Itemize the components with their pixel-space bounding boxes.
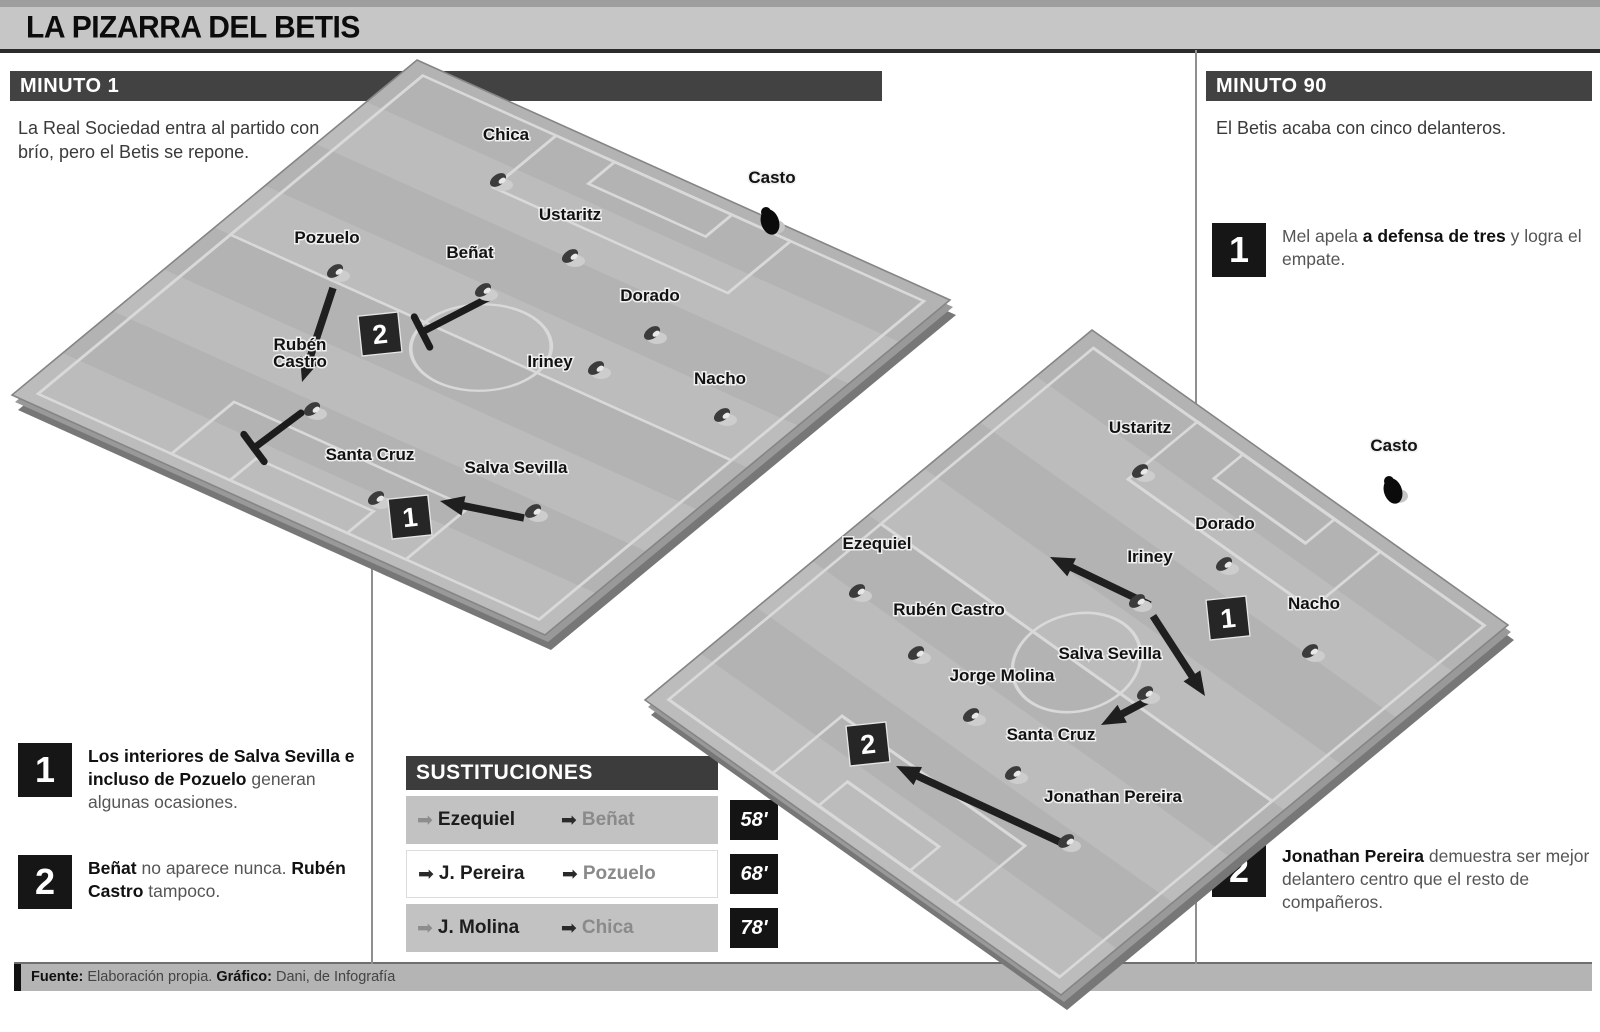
sub-minute-badge: 68' bbox=[730, 854, 778, 894]
minute-90-note-2: 2 Jonathan Pereira demuestra ser mejor d… bbox=[1212, 843, 1590, 913]
substitutions-panel: SUSTITUCIONES ➡ Ezequiel ➡ Beñat 58' ➡ J… bbox=[406, 756, 778, 952]
note-text: Mel apela a defensa de tres y logra el e… bbox=[1282, 223, 1582, 277]
player-marker: Iriney bbox=[1126, 547, 1173, 612]
sub-minute-badge: 58' bbox=[730, 800, 778, 840]
sub-player-in: Ezequiel bbox=[438, 809, 556, 831]
blocked-run-symbol bbox=[244, 413, 301, 462]
player-label: Jonathan Pereira bbox=[1044, 787, 1182, 806]
movement-arrow bbox=[1153, 616, 1205, 696]
player-label: Rubén Castro bbox=[893, 600, 1004, 619]
movement-arrow bbox=[1050, 557, 1150, 605]
player-marker: Salva Sevilla bbox=[1058, 644, 1162, 704]
player-label: Pozuelo bbox=[294, 228, 359, 247]
svg-text:1: 1 bbox=[401, 502, 419, 533]
minute-90-note-1: 1 Mel apela a defensa de tres y logra el… bbox=[1212, 223, 1582, 277]
sub-player-in: J. Pereira bbox=[439, 863, 557, 885]
note-number-badge: 1 bbox=[1212, 223, 1266, 277]
blocked-run-symbol bbox=[414, 297, 490, 347]
substitutions-title: SUSTITUCIONES bbox=[406, 756, 718, 790]
minute-90-header-label: MINUTO 90 bbox=[1216, 75, 1327, 98]
minute-90-intro: El Betis acaba con cinco delanteros. bbox=[1216, 116, 1516, 140]
player-marker: Nacho bbox=[694, 369, 746, 426]
minute-1-header: MINUTO 1 bbox=[10, 71, 882, 101]
minute-1-note-2: 2 Beñat no aparece nunca. Rubén Castro t… bbox=[18, 855, 373, 909]
player-label: Iriney bbox=[1127, 547, 1173, 566]
goalkeeper-marker: Casto bbox=[748, 168, 795, 237]
player-label: Salva Sevilla bbox=[464, 458, 568, 477]
sub-in-arrow-icon: ➡ bbox=[561, 919, 577, 938]
note-text: Beñat no aparece nunca. Rubén Castro tam… bbox=[88, 855, 373, 909]
sub-out-arrow-icon: ➡ bbox=[417, 811, 433, 830]
substitution-row: ➡ Ezequiel ➡ Beñat 58' bbox=[406, 796, 778, 844]
player-marker: Nacho bbox=[1288, 594, 1340, 662]
minute-90-header: MINUTO 90 bbox=[1206, 71, 1592, 101]
sub-out-arrow-icon: ➡ bbox=[418, 865, 434, 884]
movement-arrow bbox=[300, 288, 333, 382]
left-column-divider bbox=[371, 104, 373, 964]
player-marker: Santa Cruz bbox=[1002, 725, 1095, 784]
sub-player-out: Pozuelo bbox=[583, 863, 656, 885]
key-number-badge: 2 bbox=[358, 312, 402, 356]
player-label: Chica bbox=[483, 125, 530, 144]
note-text: Los interiores de Salva Sevilla e inclus… bbox=[88, 743, 373, 813]
substitution-row: ➡ J. Molina ➡ Chica 78' bbox=[406, 904, 778, 952]
player-label: Castro bbox=[273, 352, 327, 371]
key-number-badge: 1 bbox=[388, 495, 432, 539]
player-marker: Dorado bbox=[1195, 514, 1255, 575]
sub-player-out: Chica bbox=[582, 917, 634, 939]
sub-minute-badge: 78' bbox=[730, 908, 778, 948]
player-marker: Iriney bbox=[527, 352, 611, 379]
sub-player-out: Beñat bbox=[582, 809, 635, 831]
sub-in-arrow-icon: ➡ bbox=[562, 865, 578, 884]
player-label: Dorado bbox=[1195, 514, 1255, 533]
page-title: LA PIZARRA DEL BETIS bbox=[0, 10, 360, 46]
player-label: Casto bbox=[748, 168, 795, 187]
player-label: Salva Sevilla bbox=[1058, 644, 1162, 663]
sub-player-in: J. Molina bbox=[438, 917, 556, 939]
player-marker: Ustaritz bbox=[1109, 418, 1171, 482]
player-marker: Ezequiel bbox=[843, 534, 912, 602]
player-label: Casto bbox=[1370, 436, 1417, 455]
player-marker: Pozuelo bbox=[294, 228, 359, 282]
minute-1-header-label: MINUTO 1 bbox=[20, 75, 119, 98]
player-marker: RubénCastro bbox=[273, 335, 327, 420]
top-strip bbox=[0, 0, 1600, 7]
player-label: Beñat bbox=[446, 243, 494, 262]
player-marker: Jonathan Pereira bbox=[1044, 787, 1182, 852]
note-number-badge: 1 bbox=[18, 743, 72, 797]
player-marker: Dorado bbox=[620, 286, 680, 344]
player-label: Rubén bbox=[274, 335, 327, 354]
right-column-divider bbox=[1195, 50, 1197, 964]
goalkeeper-marker: Casto bbox=[1370, 436, 1417, 506]
key-number-badge: 1 bbox=[1206, 596, 1250, 640]
key-number-badge: 2 bbox=[846, 722, 890, 766]
footer-tick bbox=[14, 964, 21, 991]
player-label: Iriney bbox=[527, 352, 573, 371]
svg-text:2: 2 bbox=[371, 319, 389, 350]
minute-1-note-1: 1 Los interiores de Salva Sevilla e incl… bbox=[18, 743, 373, 813]
minute-1-intro: La Real Sociedad entra al partido con br… bbox=[18, 116, 343, 165]
movement-arrow bbox=[1101, 698, 1152, 725]
footer-text: Fuente: Elaboración propia. Gráfico: Dan… bbox=[31, 968, 395, 987]
player-label: Ustaritz bbox=[539, 205, 601, 224]
player-marker: Rubén Castro bbox=[893, 600, 1004, 664]
substitution-row: ➡ J. Pereira ➡ Pozuelo 68' bbox=[406, 850, 778, 898]
player-label: Jorge Molina bbox=[950, 666, 1055, 685]
movement-arrow bbox=[896, 766, 1062, 843]
svg-text:1: 1 bbox=[1219, 603, 1237, 634]
note-number-badge: 2 bbox=[18, 855, 72, 909]
player-label: Nacho bbox=[1288, 594, 1340, 613]
player-label: Dorado bbox=[620, 286, 680, 305]
player-label: Santa Cruz bbox=[1007, 725, 1096, 744]
player-marker: Beñat bbox=[446, 243, 498, 301]
infographic-la-pizarra-del-betis: { "title": "LA PIZARRA DEL BETIS", "minu… bbox=[0, 0, 1600, 1032]
player-marker: Ustaritz bbox=[539, 205, 601, 267]
movement-arrow bbox=[440, 496, 524, 518]
note-text: Jonathan Pereira demuestra ser mejor del… bbox=[1282, 843, 1590, 913]
sub-out-arrow-icon: ➡ bbox=[417, 919, 433, 938]
player-label: Ezequiel bbox=[843, 534, 912, 553]
player-marker: Jorge Molina bbox=[950, 666, 1055, 726]
footer-credit-bar: Fuente: Elaboración propia. Gráfico: Dan… bbox=[14, 962, 1592, 991]
player-label: Ustaritz bbox=[1109, 418, 1171, 437]
player-label: Nacho bbox=[694, 369, 746, 388]
player-marker: Chica bbox=[483, 125, 530, 191]
player-marker: Salva Sevilla bbox=[464, 458, 568, 522]
player-label: Santa Cruz bbox=[326, 445, 415, 464]
sub-in-arrow-icon: ➡ bbox=[561, 811, 577, 830]
title-band: LA PIZARRA DEL BETIS bbox=[0, 7, 1600, 53]
note-number-badge: 2 bbox=[1212, 843, 1266, 897]
player-marker: Santa Cruz bbox=[326, 445, 415, 509]
svg-text:2: 2 bbox=[859, 729, 877, 760]
